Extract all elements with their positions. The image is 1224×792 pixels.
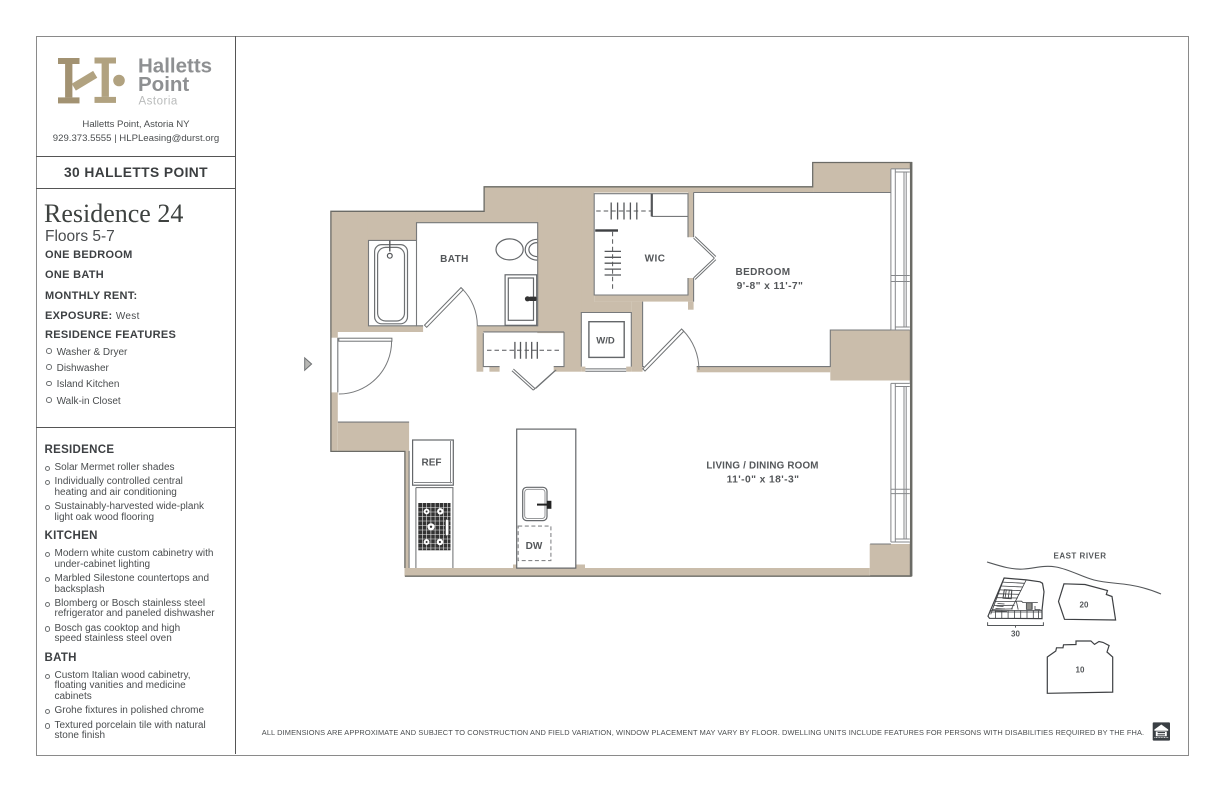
svg-text:REF: REF — [422, 458, 442, 469]
svg-text:BEDROOM: BEDROOM — [735, 267, 790, 278]
svg-text:20: 20 — [1080, 601, 1089, 610]
svg-text:DW: DW — [526, 541, 543, 552]
svg-text:9'-8" x 11'-7": 9'-8" x 11'-7" — [737, 281, 804, 292]
svg-text:30: 30 — [1011, 630, 1020, 639]
svg-text:W/D: W/D — [596, 335, 615, 346]
svg-text:11'-0" x 18'-3": 11'-0" x 18'-3" — [727, 475, 800, 486]
svg-text:LIVING / DINING ROOM: LIVING / DINING ROOM — [706, 460, 818, 471]
svg-text:10: 10 — [1076, 666, 1085, 675]
svg-text:WIC: WIC — [645, 254, 666, 265]
svg-text:BATH: BATH — [440, 254, 469, 265]
svg-text:EAST RIVER: EAST RIVER — [1053, 552, 1106, 561]
